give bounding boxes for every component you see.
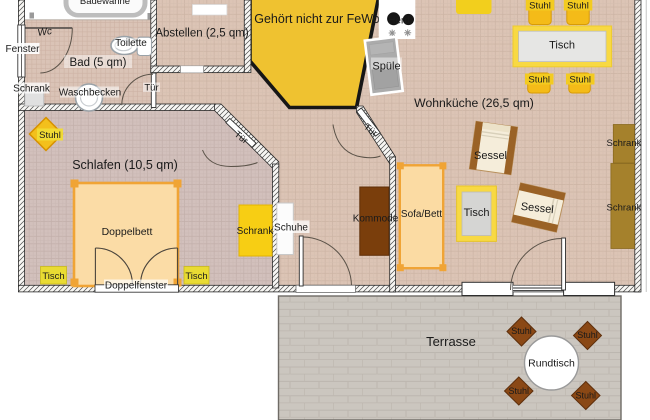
svg-text:Schuhe: Schuhe bbox=[274, 223, 308, 234]
svg-text:Doppelbett: Doppelbett bbox=[102, 226, 153, 238]
svg-text:Tür: Tür bbox=[144, 82, 158, 93]
svg-text:Tisch: Tisch bbox=[464, 207, 490, 219]
svg-text:Stuhl: Stuhl bbox=[577, 330, 598, 340]
svg-text:Badewanne: Badewanne bbox=[80, 0, 130, 7]
svg-text:Schrank: Schrank bbox=[607, 138, 642, 149]
svg-text:Stuhl: Stuhl bbox=[529, 1, 551, 12]
svg-text:Tisch: Tisch bbox=[549, 40, 575, 52]
svg-text:Schrank: Schrank bbox=[237, 226, 275, 237]
svg-text:Schrank: Schrank bbox=[607, 203, 642, 214]
svg-text:Fenster: Fenster bbox=[6, 44, 41, 55]
svg-text:Kommode: Kommode bbox=[353, 214, 399, 225]
svg-text:Schrank: Schrank bbox=[13, 84, 51, 95]
svg-text:Waschbecken: Waschbecken bbox=[59, 88, 121, 99]
svg-text:Stuhl: Stuhl bbox=[567, 1, 589, 12]
svg-text:Rundtisch: Rundtisch bbox=[528, 358, 575, 370]
svg-text:Bad (5 qm): Bad (5 qm) bbox=[70, 57, 127, 69]
svg-text:Tisch: Tisch bbox=[42, 271, 64, 282]
svg-text:Wc: Wc bbox=[37, 26, 53, 39]
svg-text:Spüle: Spüle bbox=[372, 60, 400, 72]
svg-text:Herd: Herd bbox=[388, 16, 410, 27]
svg-text:Stuhl: Stuhl bbox=[509, 386, 530, 396]
svg-text:Stuhl: Stuhl bbox=[528, 75, 550, 86]
svg-text:Schlafen (10,5 qm): Schlafen (10,5 qm) bbox=[72, 158, 178, 172]
svg-text:Stuhl: Stuhl bbox=[511, 326, 532, 336]
svg-text:Sessel: Sessel bbox=[474, 150, 507, 162]
svg-text:Sofa/Bett: Sofa/Bett bbox=[401, 209, 442, 220]
svg-text:Tisch: Tisch bbox=[185, 271, 207, 282]
svg-text:Stuhl: Stuhl bbox=[569, 75, 591, 86]
svg-text:Wohnküche (26,5 qm): Wohnküche (26,5 qm) bbox=[414, 96, 534, 110]
svg-text:Doppelfenster: Doppelfenster bbox=[105, 281, 168, 292]
svg-text:Abstellen (2,5 qm): Abstellen (2,5 qm) bbox=[155, 28, 248, 40]
svg-text:Terrasse: Terrasse bbox=[426, 334, 476, 349]
svg-text:Gehört nicht zur FeWo: Gehört nicht zur FeWo bbox=[254, 12, 380, 26]
svg-text:Toilette: Toilette bbox=[115, 38, 147, 49]
svg-text:Stuhl: Stuhl bbox=[576, 391, 597, 401]
svg-text:Stuhl: Stuhl bbox=[39, 130, 61, 141]
